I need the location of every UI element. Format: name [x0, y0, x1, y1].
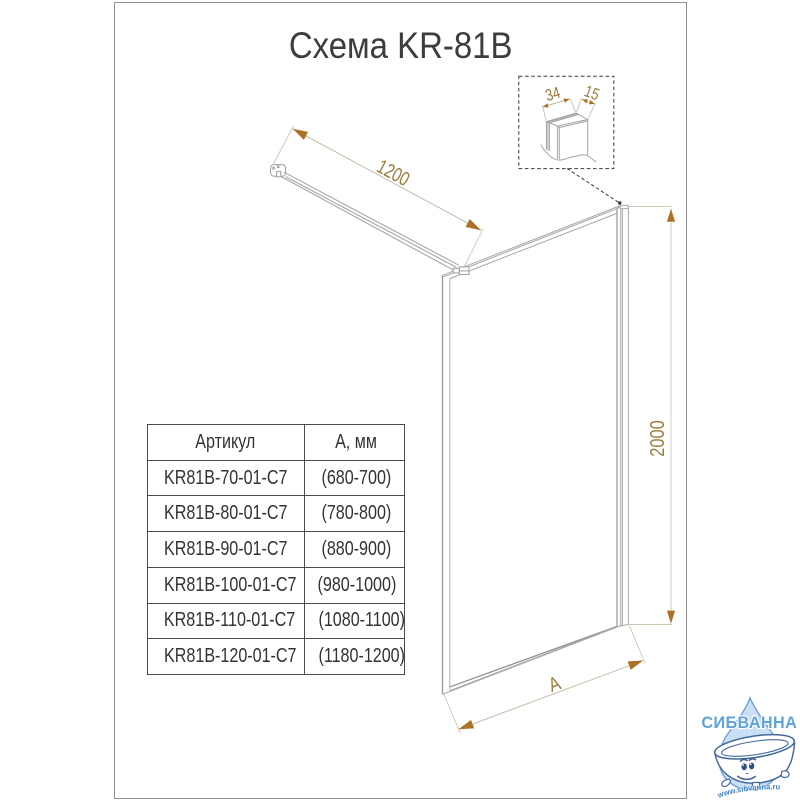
- svg-text:1200: 1200: [373, 156, 413, 191]
- svg-text:A: A: [546, 672, 564, 697]
- svg-text:СИБВАННА: СИБВАННА: [701, 714, 797, 732]
- svg-text:34: 34: [543, 84, 562, 105]
- svg-text:2000: 2000: [647, 420, 669, 457]
